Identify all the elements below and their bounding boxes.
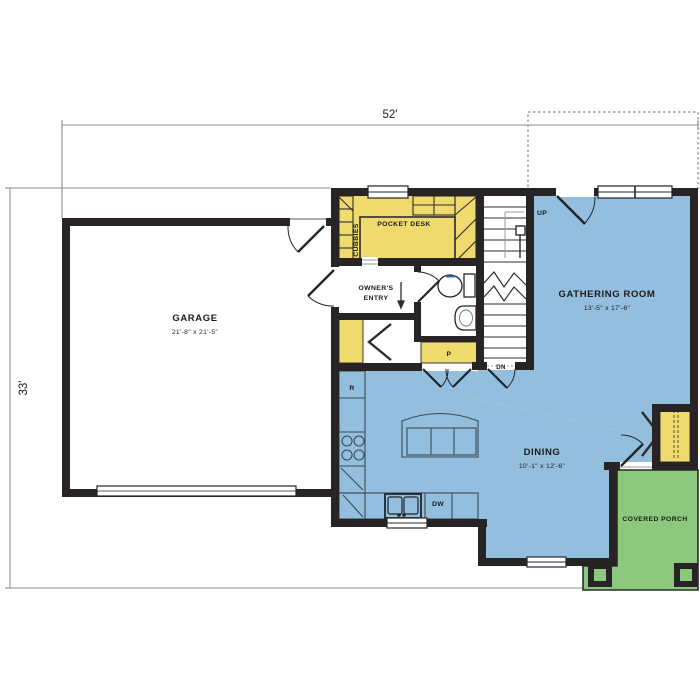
gathering-room-label: GATHERING ROOM	[559, 289, 656, 300]
floor-plan-drawing: 52' 33'	[0, 0, 700, 700]
porch-post-left-center	[594, 569, 606, 581]
stairs-down-label: DN	[496, 365, 505, 371]
wall-mud-divider-left	[331, 258, 362, 266]
wall-west-lower	[331, 307, 339, 527]
wall-powder-west-top	[414, 266, 421, 272]
wall-powder-west-bottom	[414, 302, 421, 342]
wall-stair-east	[526, 196, 534, 370]
owners-entry-label-line2: ENTRY	[364, 295, 389, 302]
wall-porch-top-right	[652, 462, 698, 470]
wall-garage-top-left	[62, 218, 290, 226]
porch-closet-cabinet	[660, 408, 690, 462]
wall-dining-east	[609, 462, 617, 566]
toilet-tank	[464, 274, 475, 297]
wall-garage-left	[62, 218, 70, 497]
stair-break-mask	[484, 266, 526, 302]
porch-post-right-center	[680, 569, 692, 581]
wall-stair-west	[476, 196, 484, 370]
refrigerator-label: R	[349, 385, 354, 392]
garage-door	[97, 486, 296, 496]
dishwasher-label: DW	[432, 501, 444, 508]
gathering-room-size: 13'-5" x 17'-6"	[584, 305, 631, 312]
window-gathering-top	[598, 186, 672, 198]
width-dimension-label: 52'	[383, 109, 398, 121]
pocket-desk-label: POCKET DESK	[377, 221, 431, 228]
staircase	[484, 196, 526, 362]
stair-newel	[516, 226, 525, 235]
covered-porch-label: COVERED PORCH	[622, 516, 687, 523]
floor-plan-page: 52' 33'	[0, 0, 700, 700]
wall-west-upper	[331, 188, 339, 267]
dining-size: 10'-1" x 12'-6"	[519, 463, 566, 470]
garage-size: 21'-8" x 21'-5"	[172, 329, 219, 336]
stairs-up-label: UP	[537, 210, 547, 217]
height-dimension-label: 33'	[18, 381, 30, 396]
garage-label: GARAGE	[172, 313, 217, 324]
wall-porch-top-left-block	[604, 462, 620, 470]
garage-floor	[70, 226, 331, 489]
wall-powder-pantry-divider	[421, 336, 484, 342]
entry-cabinet	[339, 318, 363, 363]
dining-label: DINING	[524, 447, 561, 458]
wall-closet-top	[339, 313, 421, 320]
mud-passage-opening	[362, 257, 378, 267]
wall-mud-bottom	[331, 363, 422, 371]
wall-porch-closet-left	[652, 404, 660, 470]
wall-right	[690, 188, 698, 470]
cubbies-label: CUBBIES	[353, 223, 360, 256]
pantry-label: P	[447, 351, 452, 358]
window-mud-top	[368, 186, 408, 198]
wall-mud-divider-right	[378, 258, 484, 266]
owners-entry-label-line1: OWNER'S	[358, 285, 393, 292]
toilet-bowl	[438, 275, 462, 297]
wall-dining-west	[478, 519, 486, 566]
window-dining	[527, 557, 566, 567]
window-kitchen	[387, 518, 427, 528]
